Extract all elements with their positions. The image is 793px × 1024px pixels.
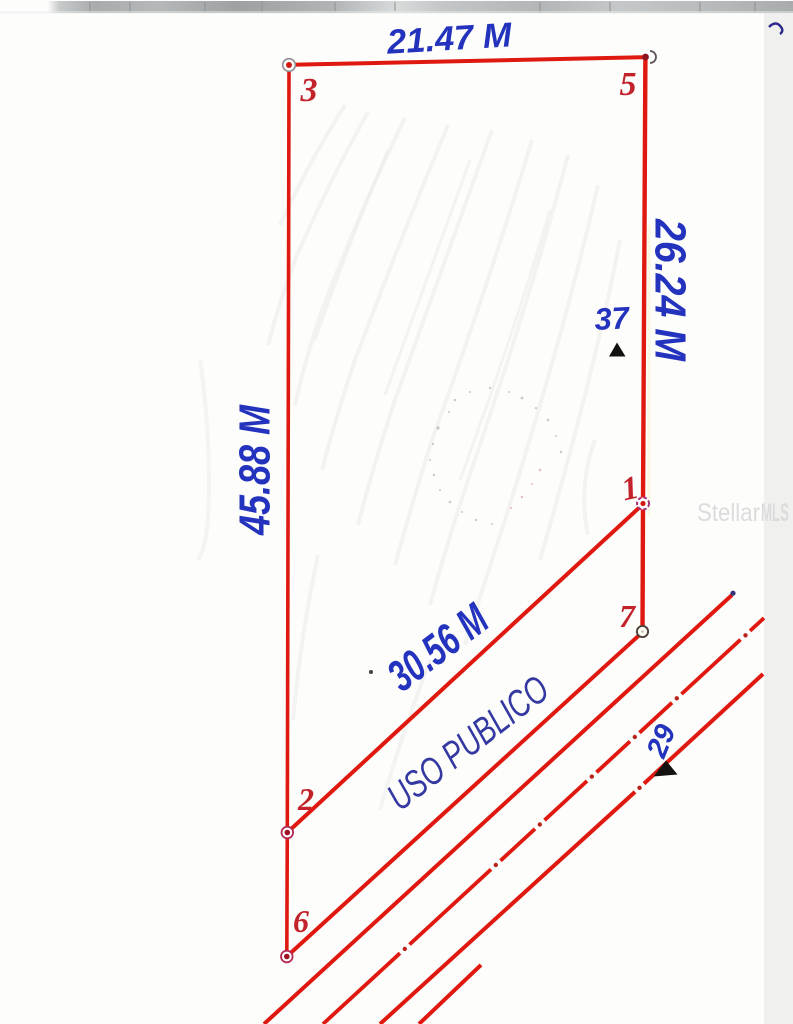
svg-text:5: 5 bbox=[620, 66, 637, 103]
svg-text:26.24 M: 26.24 M bbox=[646, 218, 695, 362]
svg-text:7: 7 bbox=[619, 598, 637, 634]
svg-text:37: 37 bbox=[594, 300, 632, 337]
svg-text:3: 3 bbox=[300, 72, 318, 109]
svg-text:2: 2 bbox=[297, 781, 314, 817]
svg-text:21.47 M: 21.47 M bbox=[385, 16, 514, 62]
svg-text:Stellar: Stellar bbox=[697, 499, 760, 527]
svg-text:6: 6 bbox=[293, 903, 309, 939]
svg-text:45.88 M: 45.88 M bbox=[231, 404, 280, 536]
svg-text:MLS: MLS bbox=[761, 499, 789, 527]
